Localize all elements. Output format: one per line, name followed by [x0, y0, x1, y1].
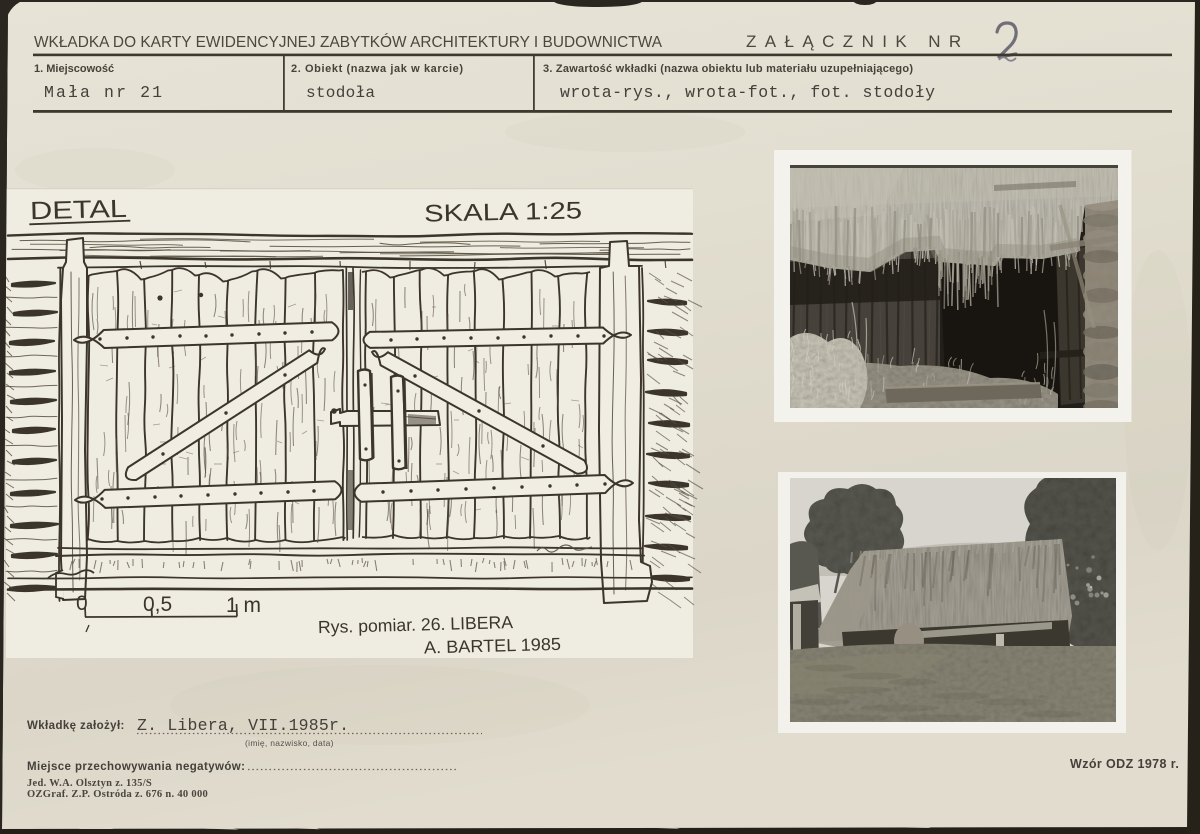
svg-text:Wkładkę założył:: Wkładkę założył:	[27, 720, 125, 732]
svg-text:Miejsce przechowywania negatyw: Miejsce przechowywania negatywów:	[27, 761, 245, 773]
svg-text:2. Obiekt (nazwa jak w karcie): 2. Obiekt (nazwa jak w karcie)	[291, 63, 463, 75]
svg-text:Jed. W.A. Olsztyn z. 135/S: Jed. W.A. Olsztyn z. 135/S	[27, 778, 152, 789]
svg-text:0: 0	[76, 592, 88, 615]
svg-text:Wzór ODZ 1978 r.: Wzór ODZ 1978 r.	[1070, 757, 1179, 771]
svg-text:(imię, nazwisko, data): (imię, nazwisko, data)	[245, 738, 334, 748]
svg-text:3. Zawartość wkładki (nazwa ob: 3. Zawartość wkładki (nazwa obiektu lub …	[543, 63, 913, 75]
svg-text:0,5: 0,5	[143, 593, 172, 616]
svg-text:stodoła: stodoła	[306, 84, 375, 102]
svg-text:1. Miejscowość: 1. Miejscowość	[34, 63, 114, 75]
svg-text:OZGraf. Z.P. Ostróda z. 676 n.: OZGraf. Z.P. Ostróda z. 676 n. 40 000	[27, 789, 208, 800]
svg-text:ZAŁĄCZNIK NR: ZAŁĄCZNIK NR	[746, 32, 970, 51]
svg-text:Z. Libera, VII.1985r.: Z. Libera, VII.1985r.	[137, 716, 349, 735]
svg-text:wrota-rys., wrota-fot., fot. s: wrota-rys., wrota-fot., fot. stodoły	[560, 83, 935, 102]
svg-text:1 m: 1 m	[226, 594, 261, 617]
svg-text:SKALA 1:25: SKALA 1:25	[424, 197, 583, 227]
svg-text:WKŁADKA DO KARTY EWIDENCYJNEJ: WKŁADKA DO KARTY EWIDENCYJNEJ ZABYTKÓW A…	[34, 34, 663, 51]
svg-text:A. BARTEL 1985: A. BARTEL 1985	[424, 634, 561, 658]
